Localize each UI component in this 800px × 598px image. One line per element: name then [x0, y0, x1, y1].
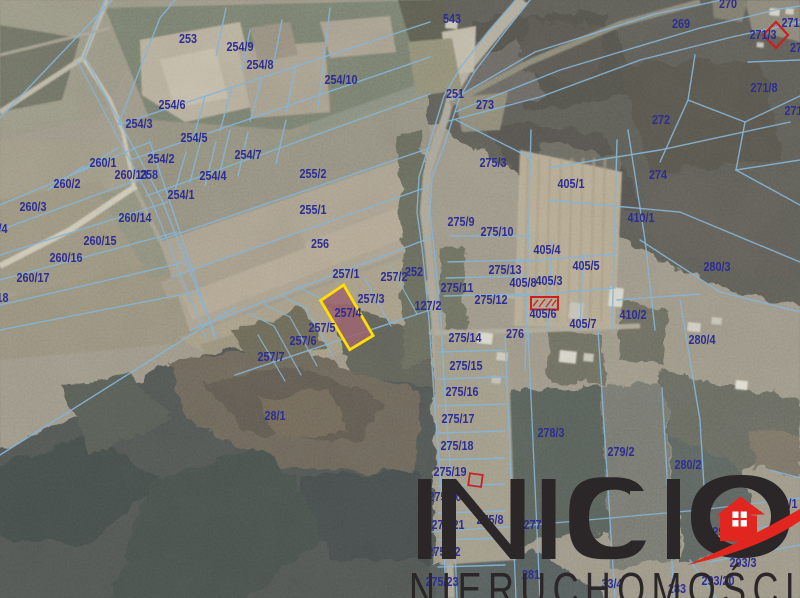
- svg-text:275/10: 275/10: [481, 224, 514, 239]
- svg-text:280/4: 280/4: [689, 332, 717, 347]
- svg-text:127/2: 127/2: [415, 298, 442, 313]
- svg-text:260/17: 260/17: [17, 270, 50, 285]
- svg-text:260/4: 260/4: [0, 221, 8, 236]
- svg-text:254/5: 254/5: [181, 130, 208, 145]
- svg-text:543: 543: [443, 11, 461, 26]
- svg-text:405/4: 405/4: [534, 242, 562, 257]
- svg-text:260/14: 260/14: [119, 210, 153, 225]
- svg-text:252: 252: [405, 264, 423, 279]
- svg-text:271/7: 271/7: [782, 15, 800, 30]
- svg-text:260/3: 260/3: [20, 199, 47, 214]
- svg-text:276: 276: [506, 326, 524, 341]
- svg-text:260/2: 260/2: [54, 176, 81, 191]
- svg-text:275/3: 275/3: [480, 155, 507, 170]
- svg-text:269: 269: [672, 16, 690, 31]
- svg-text:258: 258: [140, 167, 158, 182]
- svg-text:260/16: 260/16: [50, 250, 83, 265]
- svg-text:275/14: 275/14: [449, 330, 483, 345]
- svg-text:270: 270: [719, 0, 737, 11]
- svg-text:271: 271: [790, 40, 800, 55]
- svg-text:272: 272: [652, 112, 670, 127]
- svg-text:275/11: 275/11: [441, 280, 474, 295]
- svg-text:271/3: 271/3: [750, 27, 777, 42]
- svg-text:275/18: 275/18: [441, 438, 474, 453]
- svg-text:405/3: 405/3: [536, 273, 563, 288]
- svg-text:275/19: 275/19: [434, 464, 467, 479]
- svg-text:410/1: 410/1: [628, 210, 655, 225]
- svg-text:273: 273: [476, 97, 494, 112]
- svg-text:254/8: 254/8: [247, 57, 274, 72]
- svg-text:256: 256: [311, 236, 329, 251]
- svg-text:254/6: 254/6: [159, 97, 186, 112]
- svg-text:271/1: 271/1: [785, 103, 800, 118]
- svg-text:254/10: 254/10: [325, 72, 358, 87]
- svg-text:253: 253: [179, 31, 197, 46]
- svg-text:251: 251: [446, 86, 464, 101]
- svg-text:280/3: 280/3: [704, 259, 731, 274]
- svg-text:279/2: 279/2: [608, 444, 635, 459]
- svg-text:405/5: 405/5: [573, 258, 600, 273]
- svg-text:254/3: 254/3: [126, 116, 153, 131]
- svg-text:257/4: 257/4: [335, 305, 363, 320]
- svg-text:254/4: 254/4: [200, 168, 228, 183]
- svg-text:405/8: 405/8: [510, 275, 537, 290]
- svg-text:280/2: 280/2: [675, 457, 702, 472]
- svg-text:271/8: 271/8: [751, 80, 778, 95]
- svg-text:274: 274: [649, 167, 668, 182]
- svg-text:410/2: 410/2: [620, 307, 647, 322]
- svg-text:275/12: 275/12: [475, 292, 508, 307]
- svg-text:260/15: 260/15: [84, 233, 117, 248]
- svg-text:405/1: 405/1: [558, 176, 585, 191]
- svg-text:260/18: 260/18: [0, 290, 9, 305]
- svg-text:28/1: 28/1: [265, 408, 286, 423]
- svg-text:275/17: 275/17: [442, 411, 475, 426]
- svg-text:255/1: 255/1: [300, 202, 327, 217]
- svg-text:257/1: 257/1: [333, 266, 360, 281]
- svg-text:254/9: 254/9: [227, 39, 254, 54]
- svg-text:257/6: 257/6: [290, 333, 317, 348]
- svg-text:257/2: 257/2: [381, 269, 408, 284]
- svg-text:254/7: 254/7: [235, 147, 262, 162]
- svg-text:255/2: 255/2: [300, 166, 327, 181]
- svg-text:275/16: 275/16: [446, 384, 479, 399]
- svg-text:405/6: 405/6: [530, 306, 557, 321]
- svg-text:405/7: 405/7: [570, 316, 597, 331]
- svg-text:257/3: 257/3: [358, 291, 385, 306]
- svg-text:275/9: 275/9: [448, 214, 475, 229]
- svg-text:275/15: 275/15: [450, 358, 483, 373]
- svg-text:254/1: 254/1: [168, 187, 195, 202]
- svg-text:278/3: 278/3: [538, 425, 565, 440]
- svg-text:257/7: 257/7: [258, 349, 285, 364]
- svg-text:260/1: 260/1: [90, 155, 117, 170]
- svg-text:NIERUCHOMOŚCI: NIERUCHOMOŚCI: [409, 564, 800, 598]
- svg-text:254/2: 254/2: [148, 151, 175, 166]
